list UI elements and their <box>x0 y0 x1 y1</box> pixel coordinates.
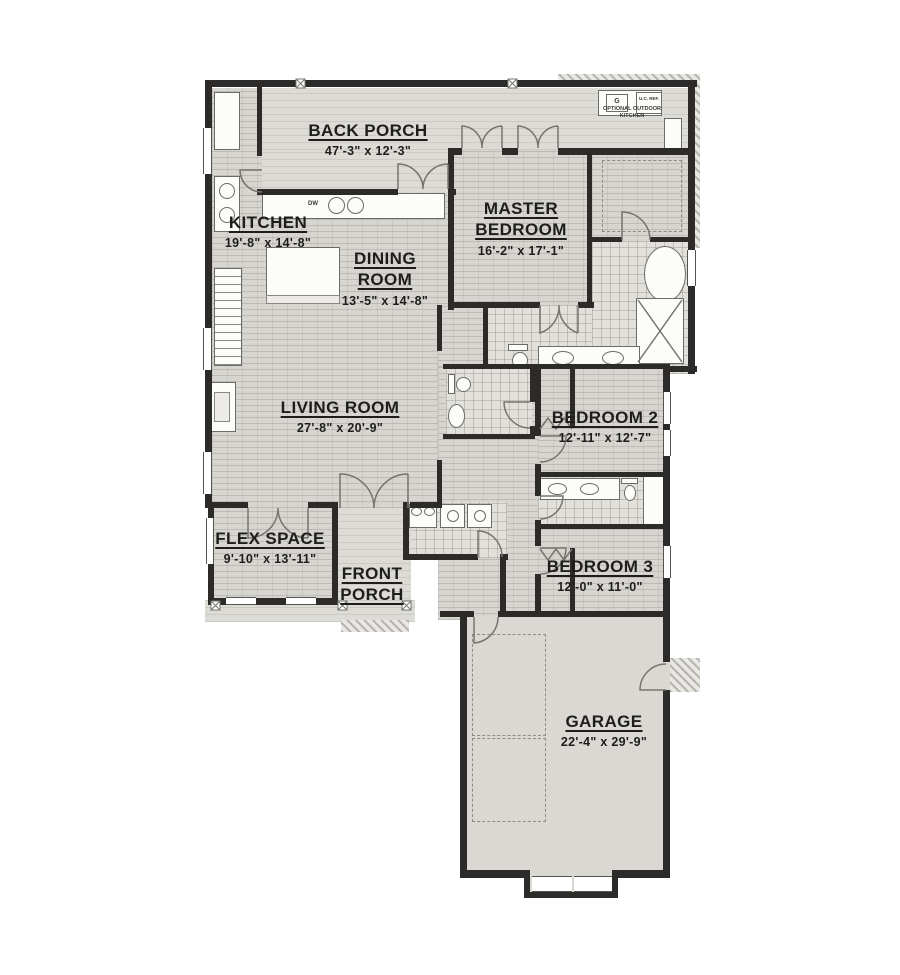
wall-segment <box>257 189 398 195</box>
window <box>663 392 671 424</box>
closet-rod <box>602 160 682 232</box>
wall-segment <box>498 611 670 617</box>
wall-segment <box>535 364 541 436</box>
outdoor-kitchen-counter <box>664 118 682 152</box>
garage-storage-area <box>472 738 546 822</box>
toilet-tank <box>621 478 638 484</box>
room-dims: 12'-11" x 12'-7" <box>552 431 659 445</box>
label-outdoor-kitchen: OPTIONAL OUTDOOR KITCHEN <box>603 106 661 119</box>
vanity-sink <box>548 483 567 495</box>
room-dims: 12'-0" x 11'-0" <box>547 580 654 594</box>
wall-segment <box>440 611 474 617</box>
room-name: BEDROOM <box>475 219 567 240</box>
wall-segment <box>403 554 478 560</box>
window <box>203 328 212 370</box>
window <box>203 452 212 494</box>
master-tub <box>644 246 686 302</box>
wall-segment <box>205 80 212 368</box>
wall-segment <box>535 472 668 477</box>
wall-segment <box>578 302 594 308</box>
wall-segment <box>663 366 670 392</box>
wall-segment <box>663 690 670 878</box>
wall-segment <box>663 456 670 546</box>
pantry-shelves <box>214 268 242 366</box>
wall-segment <box>208 598 226 605</box>
label-bedroom-2: BEDROOM 2 12'-11" x 12'-7" <box>552 407 659 445</box>
room-name: MASTER <box>475 198 567 219</box>
vanity-sink <box>602 351 624 365</box>
oven-dial <box>219 183 235 199</box>
room-name: BEDROOM 2 <box>552 407 659 428</box>
window <box>663 546 671 578</box>
kitchen-sink-basin <box>347 197 364 214</box>
vanity-sink <box>552 351 574 365</box>
wall-segment <box>332 505 338 605</box>
floor-plan: BACK PORCH 47'-3" x 12'-3" KITCHEN 19'-8… <box>0 0 900 975</box>
label-uc-ref: U.C. REF. <box>637 96 661 101</box>
label-master-bedroom: MASTER BEDROOM 16'-2" x 17'-1" <box>475 198 567 258</box>
room-name: KITCHEN <box>225 212 311 233</box>
toilet-tank <box>448 374 455 394</box>
wall-segment <box>448 148 454 310</box>
wall-segment <box>535 524 668 529</box>
wall-segment <box>535 364 670 369</box>
outdoor-kitchen-line1: OPTIONAL OUTDOOR <box>603 106 661 112</box>
wall-segment <box>612 870 670 878</box>
outdoor-kitchen-line2: KITCHEN <box>620 113 644 119</box>
laundry-sink-basin <box>411 507 422 516</box>
room-name: DINING <box>342 248 428 269</box>
label-flex-space: FLEX SPACE 9'-10" x 13'-11" <box>215 528 324 566</box>
room-dims: 9'-10" x 13'-11" <box>215 552 324 566</box>
room-name: LIVING ROOM <box>281 397 400 418</box>
window <box>286 597 316 605</box>
room-name: FLEX SPACE <box>215 528 324 549</box>
wall-segment <box>403 502 409 560</box>
room-dims: 19'-8" x 14'-8" <box>225 236 311 250</box>
wall-segment <box>524 892 618 898</box>
grill-text: G <box>614 98 619 105</box>
label-front-porch: FRONT PORCH <box>340 563 403 606</box>
window <box>206 518 214 564</box>
fireplace-firebox <box>214 392 230 422</box>
room-name: ROOM <box>342 269 428 290</box>
garage-door-panel <box>532 876 572 892</box>
kitchen-sink-basin <box>328 197 345 214</box>
window <box>226 597 256 605</box>
label-garage: GARAGE 22'-4" x 29'-9" <box>561 711 647 749</box>
wall-segment <box>535 464 541 496</box>
wall-segment <box>205 80 697 87</box>
wall-segment <box>316 598 338 605</box>
window <box>687 250 696 286</box>
garage-door-panel <box>574 876 612 892</box>
room-name: GARAGE <box>561 711 647 732</box>
wall-segment <box>257 86 262 156</box>
room-name: BACK PORCH <box>308 120 427 141</box>
dryer-door <box>474 510 486 522</box>
wall-segment <box>437 305 442 351</box>
pedestal-sink <box>448 404 465 428</box>
label-bedroom-3: BEDROOM 3 12'-0" x 11'-0" <box>547 556 654 594</box>
label-back-porch: BACK PORCH 47'-3" x 12'-3" <box>308 120 427 158</box>
uc-ref-text: U.C. REF. <box>639 96 659 101</box>
front-step <box>341 620 409 632</box>
label-kitchen: KITCHEN 19'-8" x 14'-8" <box>225 212 311 250</box>
wall-segment <box>483 305 488 367</box>
wall-segment <box>650 237 690 242</box>
wall-segment <box>558 148 690 155</box>
garage-storage-area <box>472 634 546 736</box>
toilet-bowl <box>456 377 471 392</box>
toilet-tank <box>508 344 528 351</box>
hall-floor <box>438 305 488 367</box>
window <box>203 128 212 174</box>
wall-segment <box>663 620 670 662</box>
room-dims: 16'-2" x 17'-1" <box>475 244 567 258</box>
wall-segment <box>460 616 467 878</box>
window <box>663 430 671 456</box>
laundry-sink-basin <box>424 507 435 516</box>
vanity-sink <box>580 483 599 495</box>
kitchen-island-seating <box>266 295 340 304</box>
dishwasher-text: DW <box>308 201 318 207</box>
wall-segment <box>688 284 695 374</box>
wall-segment <box>448 302 540 308</box>
room-name: BEDROOM 3 <box>547 556 654 577</box>
wall-segment <box>437 460 442 506</box>
room-name: PORCH <box>340 584 403 605</box>
room-dims: 47'-3" x 12'-3" <box>308 144 427 158</box>
wall-segment <box>688 80 695 252</box>
wall-segment <box>592 237 622 242</box>
wall-segment <box>535 574 541 616</box>
wall-segment <box>208 502 248 508</box>
washer-door <box>447 510 459 522</box>
wall-segment <box>502 148 518 155</box>
room-dims: 27'-8" x 20'-9" <box>281 421 400 435</box>
wall-segment <box>587 150 592 308</box>
wall-segment <box>460 870 530 878</box>
master-shower <box>636 298 684 364</box>
room-dims: 13'-5" x 14'-8" <box>342 294 428 308</box>
room-dims: 22'-4" x 29'-9" <box>561 735 647 749</box>
label-living-room: LIVING ROOM 27'-8" x 20'-9" <box>281 397 400 435</box>
garage-side-stoop <box>670 658 700 692</box>
wall-segment <box>500 554 506 616</box>
refrigerator <box>214 92 240 150</box>
wall-segment <box>256 598 286 605</box>
label-dining-room: DINING ROOM 13'-5" x 14'-8" <box>342 248 428 308</box>
label-grill: G <box>614 98 619 105</box>
room-name: FRONT <box>340 563 403 584</box>
wall-segment <box>443 434 535 439</box>
label-dishwasher: DW <box>308 201 318 207</box>
toilet-bowl <box>624 485 636 501</box>
wall-segment <box>443 364 535 369</box>
